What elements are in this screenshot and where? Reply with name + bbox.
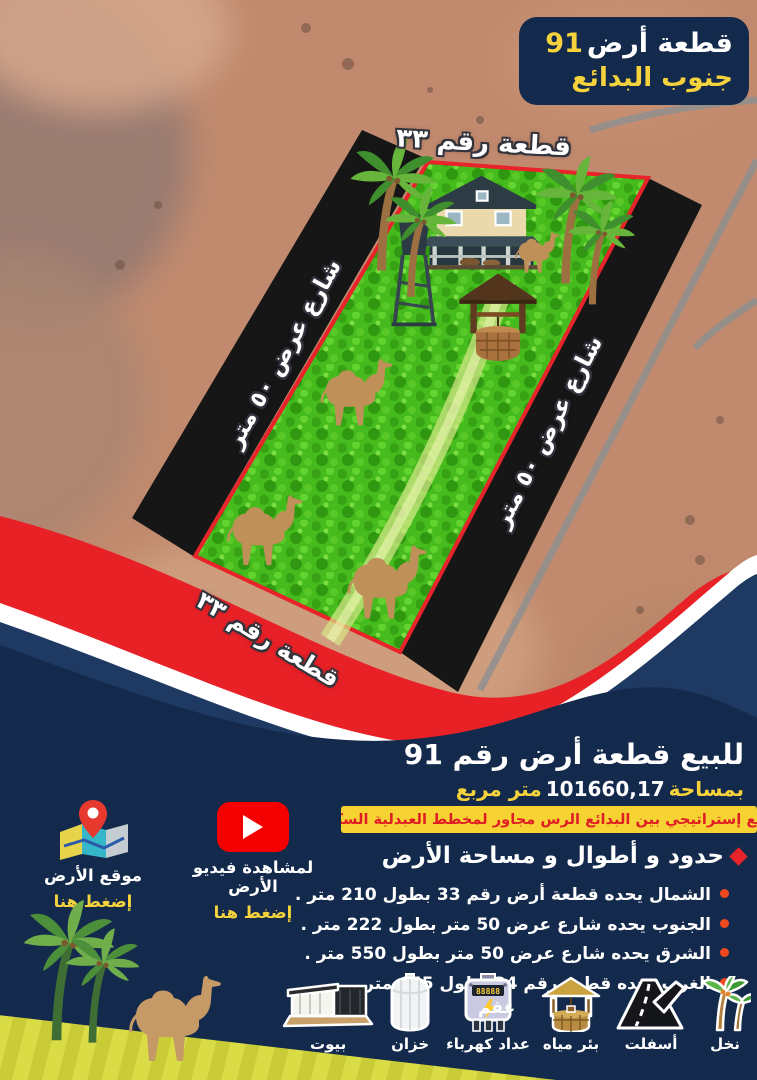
boundary-south: الجنوب يحده شارع عرض 50 متر بطول 222 متر… xyxy=(295,911,729,941)
corner-decoration xyxy=(0,900,260,1080)
map-location-button[interactable]: موقع الأرض إضغط هنا xyxy=(38,798,148,911)
feature-well: بئر مياه xyxy=(539,974,603,1053)
palm-trees-icon xyxy=(699,976,751,1032)
feature-label: أسفلت xyxy=(625,1035,678,1053)
svg-text:88888: 88888 xyxy=(476,987,500,996)
features-row: نخل أسفلت xyxy=(282,972,751,1053)
feature-palms: نخل xyxy=(699,976,751,1053)
watermark-text: عقم xyxy=(478,998,515,1018)
sale-title: للبيع قطعة أرض رقم 91 xyxy=(404,738,744,771)
houses-icon xyxy=(282,974,374,1032)
diamond-icon xyxy=(729,847,747,865)
badge-title: قطعة أرض91 xyxy=(535,27,733,61)
feature-label: بئر مياه xyxy=(543,1035,599,1053)
real-estate-poster: قطعة رقم ٣٣ قطعة رقم ٣٣ شارع عرض ٥٠ متر … xyxy=(0,0,757,1080)
boundary-north: الشمال يحده قطعة أرض رقم 33 بطول 210 متر… xyxy=(295,881,729,911)
asphalt-road-icon xyxy=(612,976,690,1032)
feature-asphalt: أسفلت xyxy=(612,976,690,1053)
plot-number: 91 xyxy=(545,28,587,59)
feature-label: نخل xyxy=(710,1035,740,1053)
water-tank-icon xyxy=(383,972,437,1032)
feature-label: خزان xyxy=(391,1035,429,1053)
title-badge: قطعة أرض91 جنوب البدائع xyxy=(519,17,749,105)
feature-tank: خزان xyxy=(383,972,437,1053)
feature-houses: بيوت xyxy=(282,974,374,1053)
map-label: موقع الأرض xyxy=(38,866,148,885)
video-label: لمشاهدة فيديو الأرض xyxy=(170,858,336,896)
area-value: 101660,17 xyxy=(542,777,669,801)
details-heading: حدود و أطوال و مساحة الأرض xyxy=(382,843,745,869)
water-well-icon xyxy=(539,974,603,1032)
badge-subtitle: جنوب البدائع xyxy=(535,61,733,95)
area-line: بمساحة101660,17متر مربع xyxy=(456,777,744,801)
youtube-play-icon[interactable] xyxy=(217,802,289,852)
location-note-bar: موقع إستراتيجي بين البدائع الرس مجاور لم… xyxy=(341,806,757,833)
boundary-east: الشرق يحده شارع عرض 50 متر بطول 550 متر … xyxy=(295,940,729,970)
feature-label: عداد كهرباء xyxy=(446,1035,530,1053)
feature-label: بيوت xyxy=(310,1035,346,1053)
map-icon[interactable] xyxy=(54,798,132,860)
